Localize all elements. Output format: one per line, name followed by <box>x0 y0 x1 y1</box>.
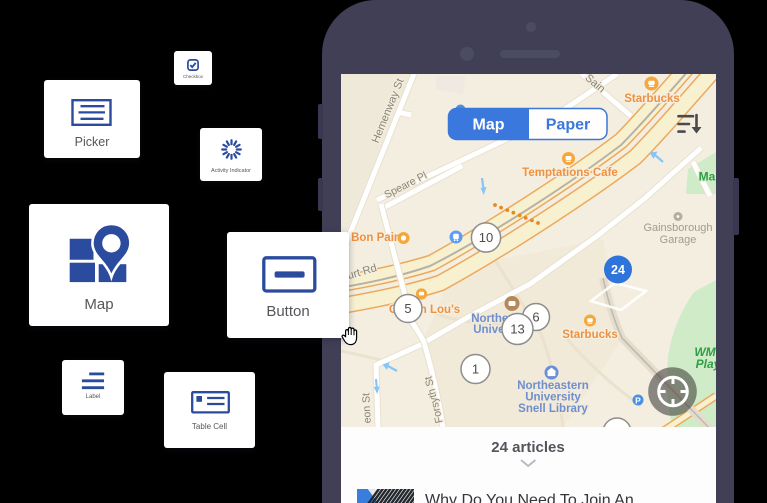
svg-text:Northeastern: Northeastern <box>517 380 589 392</box>
svg-text:24 articles: 24 articles <box>491 439 564 456</box>
svg-text:10: 10 <box>479 230 493 245</box>
svg-text:Bon Pain: Bon Pain <box>351 232 401 244</box>
svg-text:6: 6 <box>532 310 539 325</box>
svg-text:University: University <box>525 392 581 404</box>
svg-text:h Lou's: h Lou's <box>420 304 460 316</box>
svg-text:Play: Play <box>696 357 716 371</box>
svg-text:13: 13 <box>510 322 524 337</box>
svg-text:Map: Map <box>473 117 505 134</box>
svg-text:Paper: Paper <box>546 117 590 134</box>
svg-text:eon St: eon St <box>360 393 374 424</box>
svg-text:Garage: Garage <box>660 234 697 246</box>
svg-text:5: 5 <box>404 301 411 316</box>
svg-text:Why Do You Need To Join An: Why Do You Need To Join An <box>425 492 634 503</box>
svg-text:Temptations Cafe: Temptations Cafe <box>522 167 618 179</box>
svg-text:24: 24 <box>611 263 625 277</box>
svg-text:Ma: Ma <box>699 170 716 184</box>
svg-text:Gainsborough: Gainsborough <box>643 222 712 234</box>
svg-text:Starbucks: Starbucks <box>624 93 680 105</box>
svg-text:Starbucks: Starbucks <box>562 329 618 341</box>
svg-text:Snell Library: Snell Library <box>518 403 588 415</box>
svg-text:1: 1 <box>472 362 479 377</box>
svg-text:P: P <box>635 396 641 406</box>
